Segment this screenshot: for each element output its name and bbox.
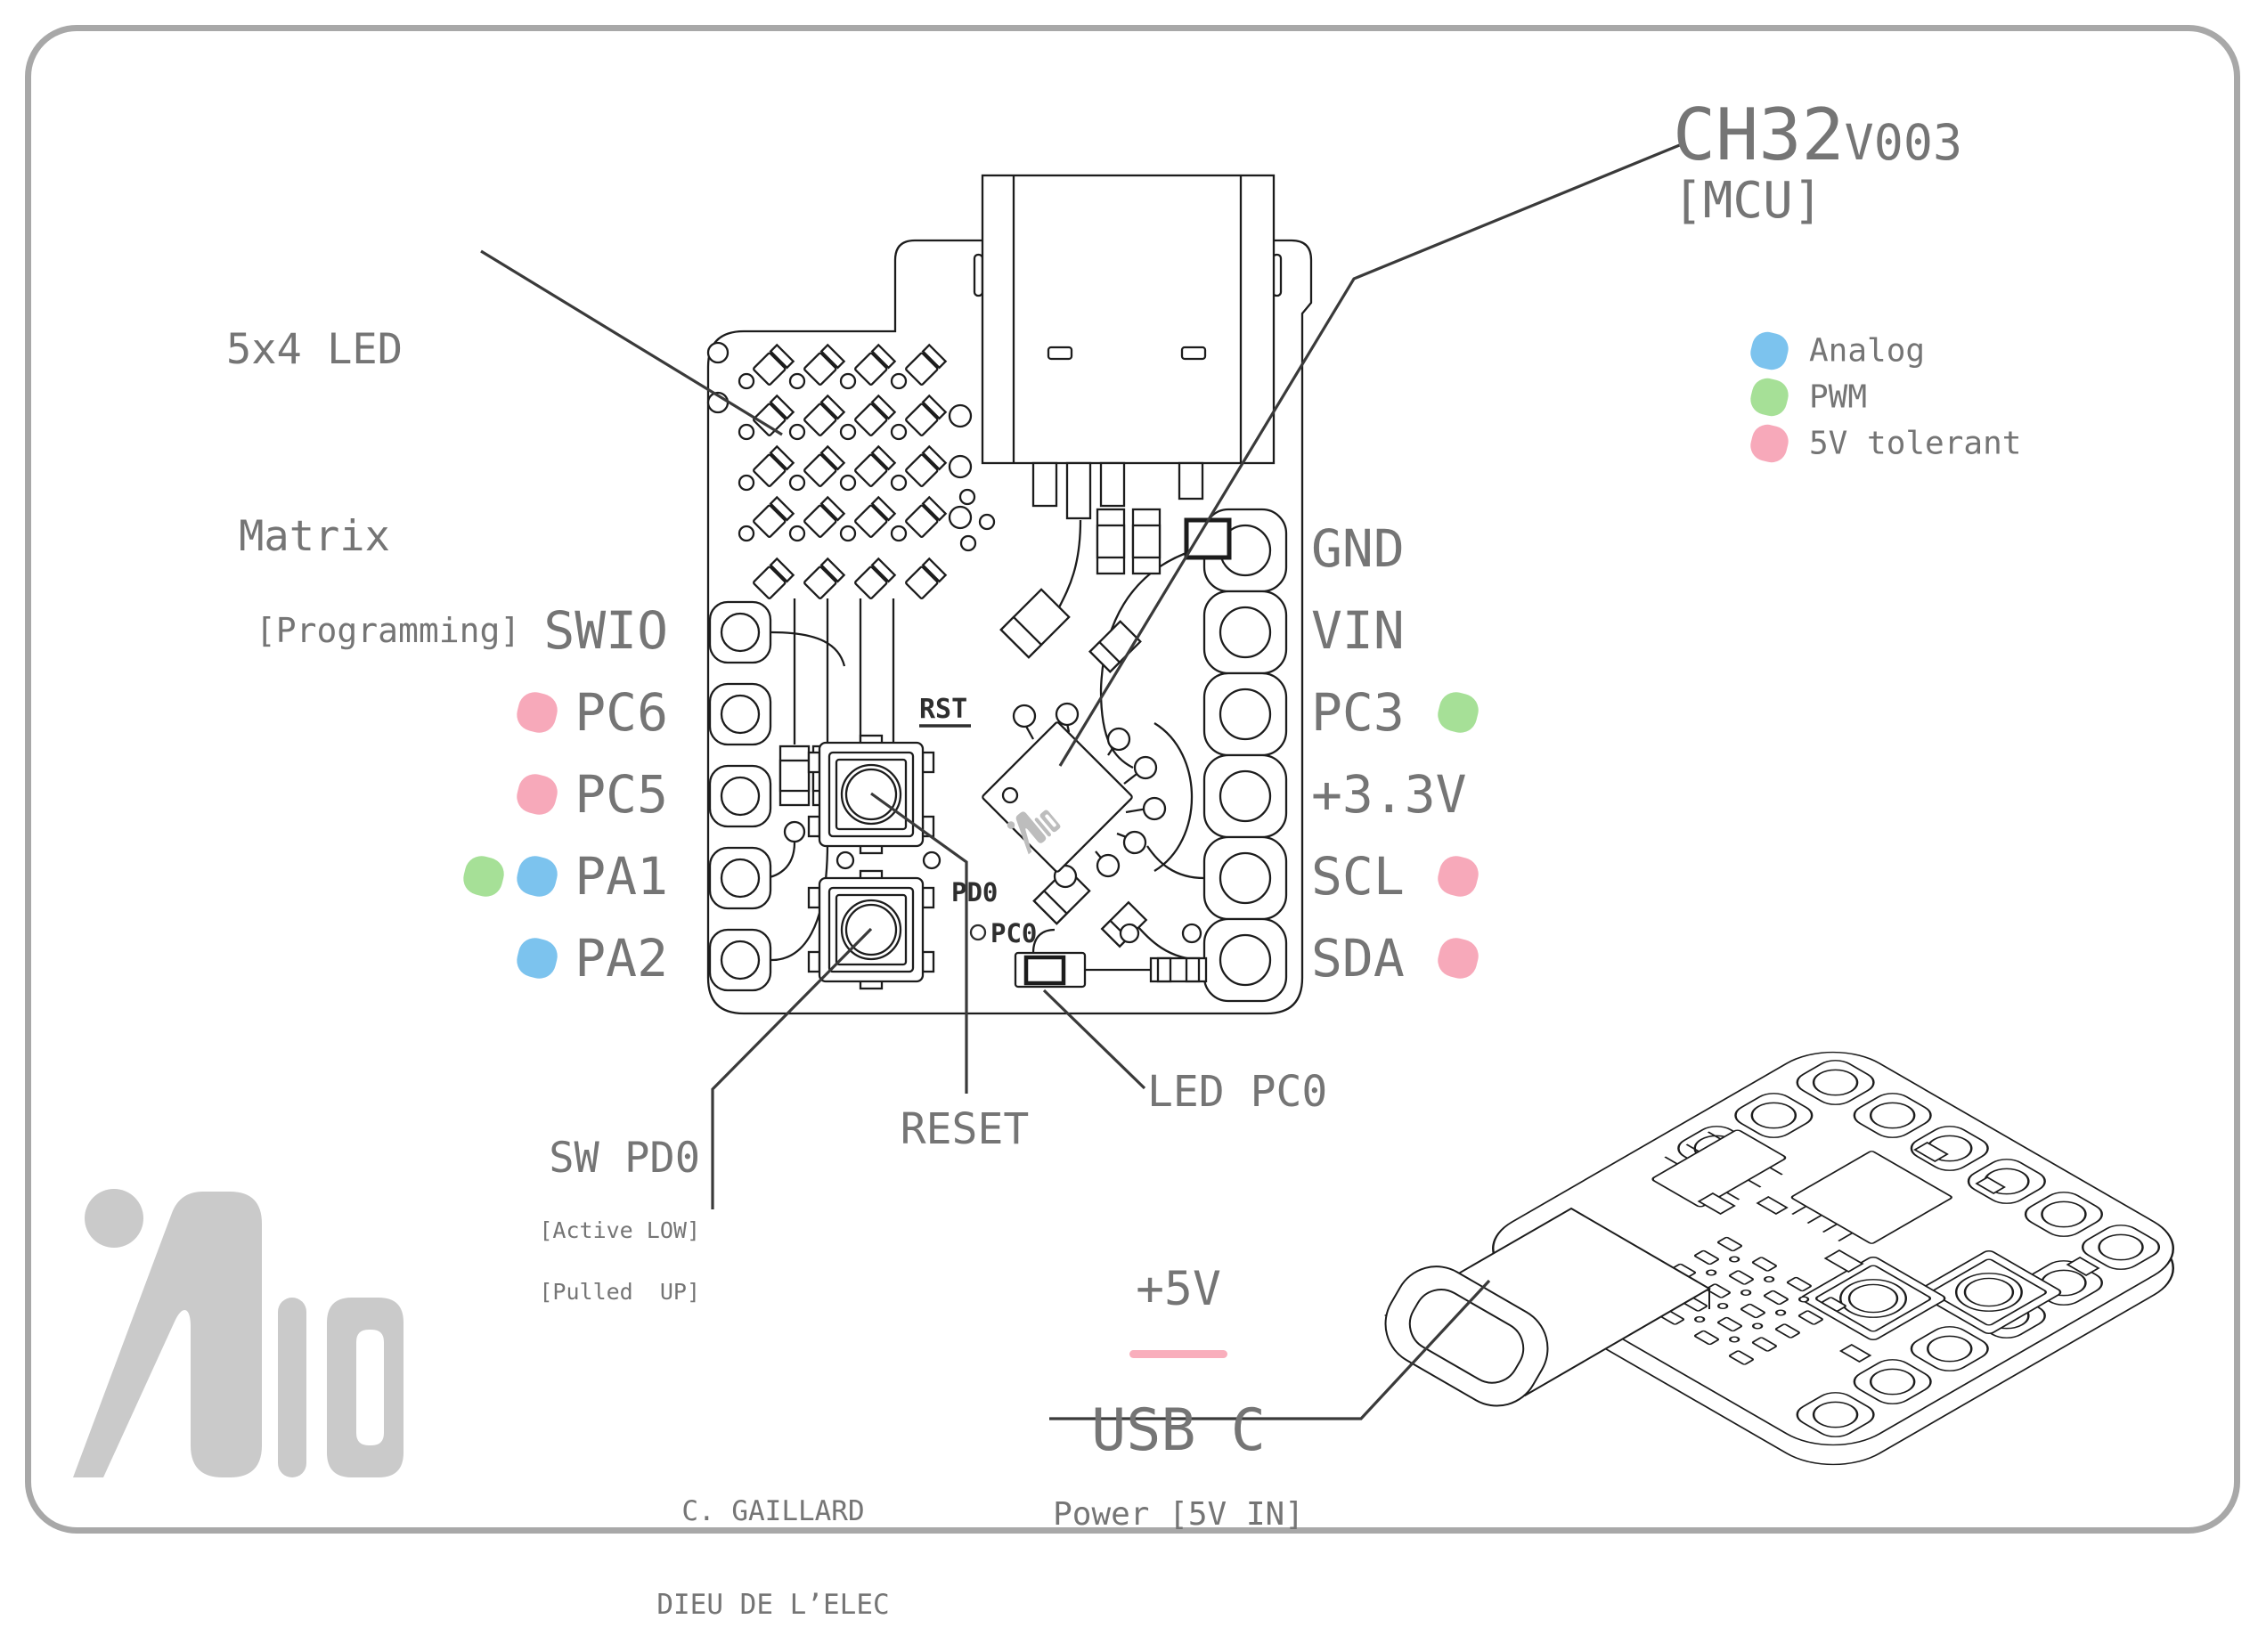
usb-voltage-underline [1129, 1350, 1227, 1358]
5v-tolerant-dot [1748, 421, 1792, 466]
reset-callout: RESET [901, 1104, 1030, 1154]
board-3d-render [1370, 1037, 2200, 1480]
pin-row-pa2: PA2 [518, 932, 668, 984]
led-matrix-callout: 5x4 LED Matrix [136, 194, 493, 631]
pcb-top-view: RST PD0 PC0 [708, 175, 1311, 1013]
pin-label-swio: SWIO [543, 605, 668, 656]
pin-row-swio: [Programming] SWIO [256, 605, 668, 656]
tolerant5v-dot [1434, 852, 1481, 899]
legend-item-pwm: PWM [1751, 379, 1867, 416]
pin-pa2-dots [518, 939, 557, 978]
analog-dot [514, 852, 561, 899]
usb-subtitle: Power [5V IN] [911, 1497, 1446, 1533]
pin-label-pa2: PA2 [575, 932, 668, 984]
led-matrix-callout-line1: 5x4 LED [136, 319, 493, 381]
pwm-dot [1434, 688, 1481, 736]
legend-label-pwm: PWM [1809, 379, 1867, 415]
pin-label-sda: SDA [1311, 932, 1405, 984]
pin-pc3-dots [1439, 693, 1478, 732]
pin-label-pa1: PA1 [575, 850, 668, 902]
legend-item-5v-tolerant: 5V tolerant [1751, 426, 2021, 462]
pin-label-pc5: PC5 [575, 769, 668, 820]
tolerant5v-dot [1434, 934, 1481, 981]
mcu-callout: CH32 V003 [MCU] [1673, 100, 1962, 228]
pin-label-3v3: +3.3V [1311, 769, 1467, 820]
pin-label-pc6: PC6 [575, 687, 668, 738]
legend-item-analog: Analog [1751, 333, 1925, 370]
mcu-variant: V003 [1845, 118, 1962, 167]
sw-pd0-note-active-low: [Active LOW] [539, 1217, 700, 1244]
pin-label-gnd: GND [1311, 523, 1405, 574]
pin-pc6-dots [518, 693, 557, 732]
silkscreen-rst: RST [919, 694, 967, 725]
pwm-dot [1748, 375, 1792, 419]
credit-author: C. GAILLARD [656, 1496, 889, 1527]
pin-row-pc3: PC3 [1311, 687, 1478, 738]
legend-label-analog: Analog [1809, 333, 1925, 369]
pin-row-sda: SDA [1311, 932, 1478, 984]
credit: C. GAILLARD DIEU DE L’ELEC [656, 1434, 889, 1652]
pin-label-scl: SCL [1311, 850, 1405, 902]
pin-label-vin: VIN [1311, 605, 1405, 656]
usb-callout: +5V USB C Power [5V IN] [911, 1231, 1446, 1550]
pwm-dot [461, 852, 508, 899]
pinout-diagram-page: { "colors": { "analog": "#7cc3ee", "pwm"… [0, 0, 2258, 1551]
pin-label-pc3: PC3 [1311, 687, 1405, 738]
led-pc0-callout: LED PC0 [1147, 1067, 1327, 1117]
pin-row-pc5: PC5 [518, 769, 668, 820]
pin-row-pa1: PA1 [464, 850, 668, 902]
silkscreen-pc0: PC0 [990, 918, 1037, 948]
mcu-name: CH32 [1673, 100, 1845, 171]
credit-tagline: DIEU DE L’ELEC [656, 1590, 889, 1621]
sw-pd0-title: SW PD0 [539, 1135, 700, 1183]
pin-row-3v3: +3.3V [1311, 769, 1467, 820]
pin-row-vin: VIN [1311, 605, 1405, 656]
led-matrix-callout-line2: Matrix [136, 506, 493, 568]
analog-dot [1748, 329, 1792, 373]
legend-label-5v-tolerant: 5V tolerant [1809, 426, 2021, 461]
sw-pd0-note-pulled-up: [Pulled UP] [539, 1278, 700, 1306]
aio-logo [73, 1189, 404, 1477]
usb-title: USB C [911, 1399, 1446, 1463]
sw-pd0-callout: SW PD0 [Active LOW] [Pulled UP] [539, 1101, 700, 1322]
pin-scl-dots [1439, 857, 1478, 896]
pin-sda-dots [1439, 939, 1478, 978]
usb-voltage: +5V [911, 1265, 1446, 1314]
pin-row-pc6: PC6 [518, 687, 668, 738]
tolerant5v-dot [514, 770, 561, 818]
mcu-type: [MCU] [1673, 175, 1962, 228]
left-pad-column [710, 602, 770, 990]
pin-row-gnd: GND [1311, 523, 1405, 574]
pin-row-scl: SCL [1311, 850, 1478, 902]
pin-swio-prefix: [Programming] [256, 614, 520, 647]
analog-dot [514, 934, 561, 981]
tolerant5v-dot [514, 688, 561, 736]
pin-pa1-dots [464, 857, 557, 896]
silkscreen-pd0: PD0 [951, 877, 998, 907]
pin-pc5-dots [518, 775, 557, 814]
